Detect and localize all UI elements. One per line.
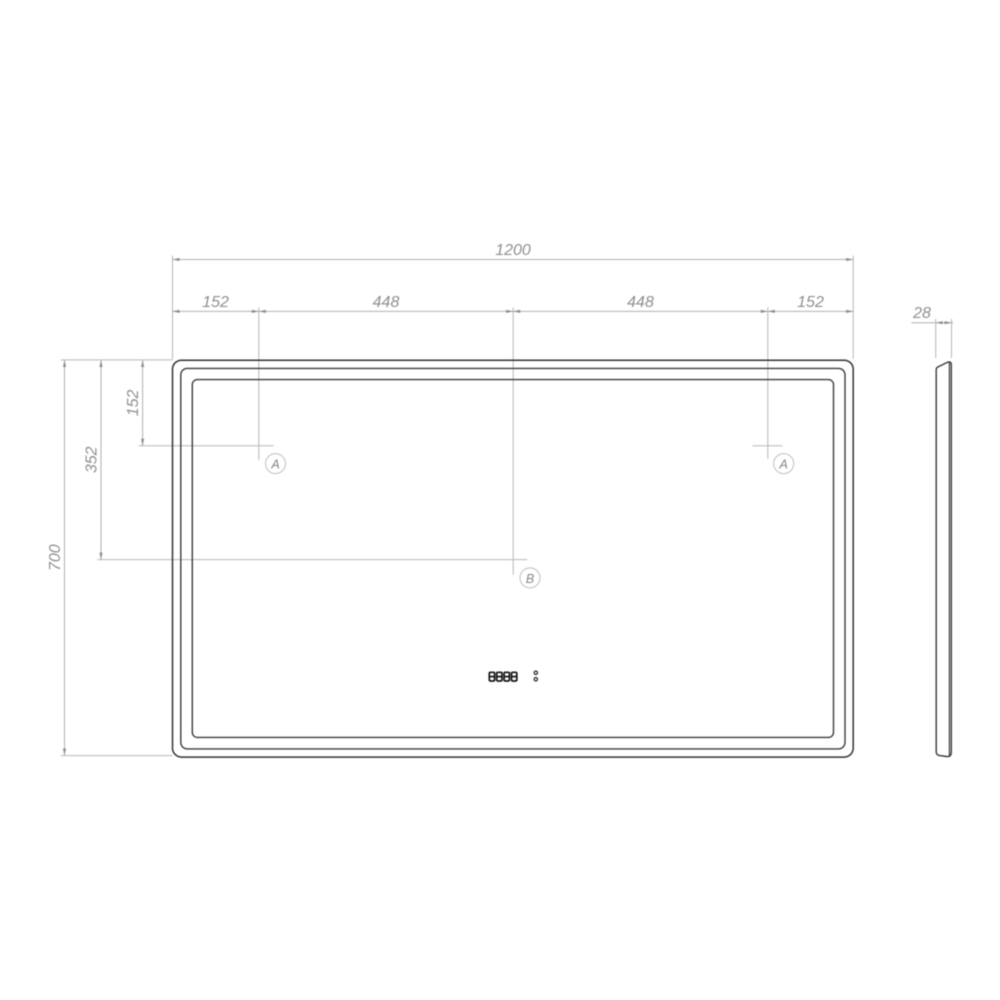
svg-text:A: A (779, 458, 788, 472)
svg-text:152: 152 (202, 294, 229, 311)
svg-text:152: 152 (797, 294, 824, 311)
svg-text:700: 700 (47, 544, 64, 571)
svg-text:A: A (270, 458, 279, 472)
svg-text:152: 152 (125, 389, 142, 416)
svg-text:B: B (526, 572, 534, 586)
svg-text:448: 448 (373, 294, 400, 311)
svg-text:448: 448 (627, 294, 654, 311)
svg-text:28: 28 (912, 305, 931, 322)
svg-text:1200: 1200 (495, 242, 531, 259)
svg-text:352: 352 (84, 446, 101, 473)
